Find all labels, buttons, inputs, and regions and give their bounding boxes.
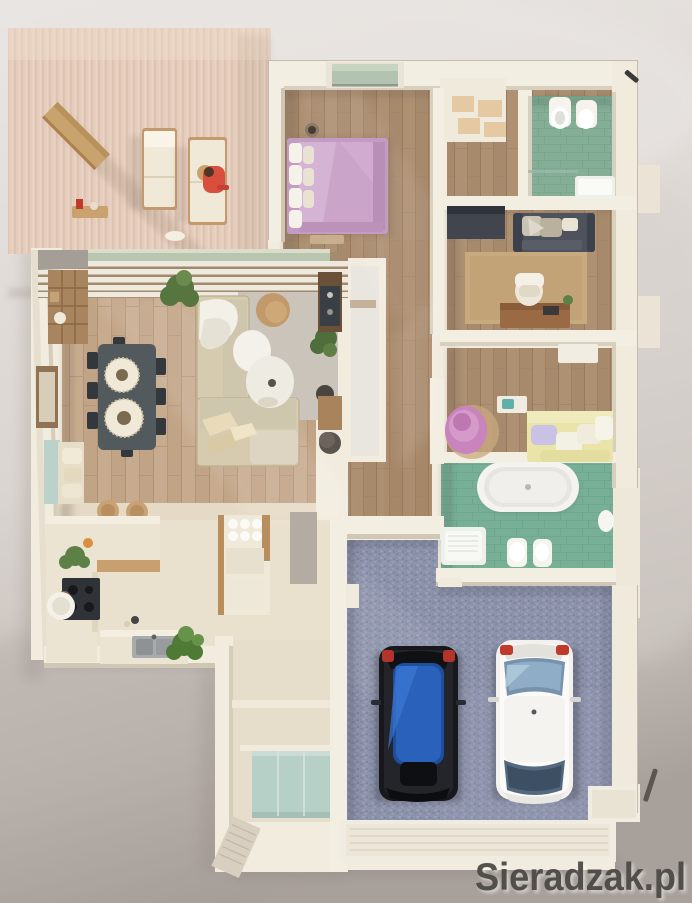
svg-text:Sieradzak.pl: Sieradzak.pl (475, 856, 686, 899)
